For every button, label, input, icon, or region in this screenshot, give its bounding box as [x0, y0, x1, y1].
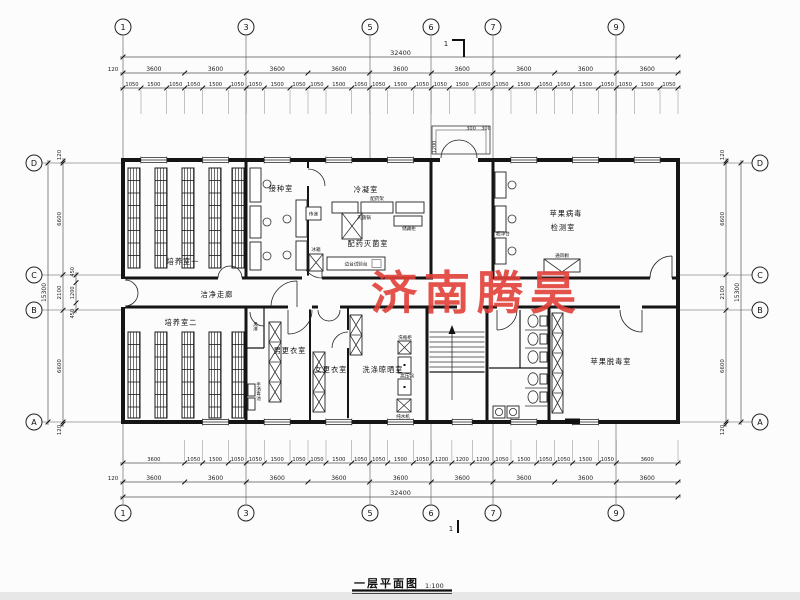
dim-label: 1500 — [394, 82, 407, 88]
label-autoclave: 高压锅 — [400, 373, 414, 380]
dim-left-segments: 120660021006600120 — [57, 149, 65, 435]
label-bench-test: 边台试验台 — [345, 261, 368, 268]
dim-label: 1050 — [539, 82, 552, 88]
dim-label: 3600 — [578, 66, 593, 73]
dim-label: 1050 — [231, 82, 244, 88]
dim-label: 3600 — [331, 475, 346, 482]
stair-up-arrow — [449, 325, 456, 334]
grid-bubble-label: 7 — [490, 509, 495, 518]
dim-right-total: 15300 — [734, 160, 743, 425]
room-label-condensation: 冷凝室 — [354, 185, 379, 194]
title-block: 一层平面图 1:100 — [352, 577, 452, 594]
label-pure-water: 纯水机 — [396, 413, 410, 420]
grid-bubble-label: D — [757, 159, 763, 168]
dim-label: 3600 — [516, 475, 531, 482]
toilet — [540, 352, 547, 362]
dim-label: 1050 — [495, 82, 508, 88]
dim-label: 120 — [720, 424, 726, 435]
dim-label: 1050 — [601, 82, 614, 88]
dim-label: 32400 — [390, 489, 411, 497]
dim-label: 120 — [720, 149, 726, 160]
dim-top-bays: 360036003600360036003600360036003600 — [120, 66, 681, 75]
dim-label: 1050 — [619, 82, 632, 88]
grid-bubble-label: 3 — [243, 23, 248, 32]
room-label-virus-test: 检测室 — [551, 223, 576, 232]
dim-label: 1500 — [641, 82, 654, 88]
dim-label: 1050 — [477, 82, 490, 88]
dim-label: 1500 — [456, 82, 469, 88]
fridge-box — [309, 254, 323, 271]
dim-left-total: 15300 — [41, 160, 50, 425]
label-clean-bench: 超净台 — [496, 230, 510, 237]
room-label-virus-test: 苹果病毒 — [550, 209, 583, 218]
watermark-text: 济南腾昊 — [371, 266, 583, 320]
dim-label: 1500 — [517, 82, 530, 88]
grid-bubble-label: 5 — [367, 509, 372, 518]
entrance-depth-dim: 1200 — [432, 141, 438, 154]
label-sterilizer: 灭菌锅 — [357, 214, 371, 221]
grid-bubble-label: C — [31, 271, 37, 280]
pure-water-box — [397, 399, 411, 412]
edge-offset-top: 120 — [108, 67, 119, 73]
locker-columns — [269, 313, 563, 413]
grid-bubble-label: A — [757, 418, 763, 427]
toilet — [540, 392, 547, 402]
grid-bubble-label: 9 — [613, 23, 618, 32]
dim-label: 120 — [57, 149, 63, 160]
grid-bubble-label: A — [31, 418, 37, 427]
dim-label: 3600 — [640, 475, 655, 482]
label-bottle-wash: 洗瓶柜 — [398, 334, 412, 341]
dim-bottom-bays: 360036003600360036003600360036003600 — [120, 475, 681, 484]
grid-bubble-label: 6 — [428, 23, 433, 32]
room-label-men-change: 男更衣室 — [274, 346, 307, 355]
drawing-title: 一层平面图 — [354, 577, 419, 590]
dim-label: 1500 — [332, 457, 345, 463]
drawing-scale: 1:100 — [425, 582, 444, 590]
dim-label: 1500 — [579, 82, 592, 88]
dim-bottom-total: 32400 — [120, 489, 681, 499]
dim-label: 3600 — [516, 66, 531, 73]
room-label-wash-dry: 洗涤晾晒室 — [363, 365, 404, 374]
entrance-step-dim: 300 — [481, 126, 491, 132]
staircase — [430, 325, 485, 400]
dim-label: 3600 — [147, 457, 160, 463]
dim-label: 1050 — [310, 457, 323, 463]
grid-bubble-label: 3 — [243, 509, 248, 518]
dim-label: 3600 — [640, 66, 655, 73]
dim-label: 1500 — [147, 82, 160, 88]
floorplan-drawing: 135679 135679 DCBA DCBA 32400 3600360036… — [0, 0, 800, 600]
dim-bottom-windows: 3600105015001050105015001050105015001050… — [120, 440, 681, 465]
dim-label: 1200 — [435, 457, 448, 463]
section-mark-label: 1 — [444, 40, 448, 48]
toilet — [540, 374, 547, 384]
grid-bubble-label: B — [757, 306, 763, 315]
entrance-step-dim: 300 — [466, 126, 476, 132]
dim-label: 1500 — [209, 457, 222, 463]
dim-label: 1050 — [310, 82, 323, 88]
dim-label: 1500 — [517, 457, 530, 463]
dim-label: 1500 — [271, 457, 284, 463]
room-label-corridor: 洁净走廊 — [201, 290, 234, 299]
dim-label: 1050 — [125, 82, 138, 88]
dim-label: 3600 — [208, 66, 223, 73]
dim-label: 3600 — [146, 475, 161, 482]
grid-bubble-label: B — [31, 306, 37, 315]
dim-label: 1500 — [209, 82, 222, 88]
dim-label: 1050 — [495, 457, 508, 463]
bottle-wash-box — [398, 341, 411, 354]
dim-label: 1500 — [579, 457, 592, 463]
toilet — [540, 334, 547, 344]
grid-bottom: 135679 — [115, 424, 624, 521]
dim-label: 1050 — [372, 457, 385, 463]
dim-label: 2100 — [720, 285, 726, 299]
dim-label: 1200 — [476, 457, 489, 463]
dim-label: 1500 — [394, 457, 407, 463]
grid-bubble-label: 1 — [120, 23, 125, 32]
room-label-prep-steril: 配药灭菌室 — [348, 239, 389, 248]
dim-label: 3600 — [270, 66, 285, 73]
dim-label: 3600 — [146, 66, 161, 73]
grid-bubble-label: 9 — [613, 509, 618, 518]
room-label-inoculation: 接种室 — [269, 184, 294, 193]
dim-label: 6600 — [57, 359, 63, 373]
dim-label: 3600 — [455, 66, 470, 73]
dim-top-total: 32400 — [120, 49, 681, 59]
dim-right-segments: 120660021006600120 — [720, 149, 728, 435]
grid-bubble-label: C — [757, 271, 763, 280]
label-pass-box: 传递 — [309, 211, 319, 218]
dim-label: 1050 — [372, 82, 385, 88]
dim-label: 6600 — [57, 211, 63, 225]
dim-label: 1050 — [354, 82, 367, 88]
grid-bubble-label: 7 — [490, 23, 495, 32]
sink — [507, 406, 519, 418]
dim-label: 1050 — [169, 82, 182, 88]
floorplan-page: 135679 135679 DCBA DCBA 32400 3600360036… — [0, 0, 800, 600]
dim-label: 1050 — [187, 82, 200, 88]
room-label-women-change: 女更衣室 — [315, 365, 348, 374]
section-mark-bottom: 1 — [449, 520, 458, 533]
dim-label: 1050 — [249, 82, 262, 88]
dim-label: 1500 — [271, 82, 284, 88]
dim-label: 6600 — [720, 359, 726, 373]
dim-label: 1050 — [416, 457, 429, 463]
dim-label: 1050 — [557, 457, 570, 463]
dim-label: 3600 — [578, 475, 593, 482]
dim-label: 1050 — [601, 457, 614, 463]
room-label-detox: 苹果脱毒室 — [591, 357, 632, 366]
dim-label: 450 — [70, 267, 76, 277]
dim-label: 1050 — [187, 457, 200, 463]
room-label-culture2: 培养室二 — [165, 318, 198, 327]
dim-label: 120 — [57, 424, 63, 435]
dim-label: 3600 — [641, 457, 654, 463]
dim-label: 1200 — [456, 457, 469, 463]
dim-top-windows: 1050150010501050150010501050150010501050… — [120, 82, 681, 114]
edge-offset-bottom: 120 — [108, 476, 119, 482]
dim-label: 3600 — [455, 475, 470, 482]
dim-label: 1050 — [557, 82, 570, 88]
dim-label: 3600 — [208, 475, 223, 482]
dim-label: 1200 — [70, 286, 76, 299]
dim-label: 1050 — [292, 82, 305, 88]
label-air-shower: 风淋 — [253, 322, 258, 333]
grid-bubble-label: 1 — [120, 509, 125, 518]
dim-label: 1050 — [231, 457, 244, 463]
dim-label: 6600 — [720, 211, 726, 225]
grid-bubble-label: 6 — [428, 509, 433, 518]
grid-bubble-label: D — [31, 159, 37, 168]
label-hand-wash: 手消毒池 — [256, 381, 261, 401]
dim-label: 2100 — [57, 285, 63, 299]
label-fume-hood: 通风橱 — [555, 252, 569, 259]
dim-label: 1050 — [662, 82, 675, 88]
dim-label: 1050 — [539, 457, 552, 463]
dim-label: 15300 — [41, 283, 48, 302]
dim-label: 1500 — [332, 82, 345, 88]
label-med-rack: 配药架 — [370, 195, 384, 202]
grid-bubble-label: 5 — [367, 23, 372, 32]
label-fridge: 冰箱 — [311, 246, 321, 253]
sink — [493, 406, 505, 418]
dim-label: 32400 — [390, 49, 411, 57]
section-mark-label: 1 — [449, 525, 453, 533]
dim-label: 3600 — [270, 475, 285, 482]
room-label-culture1: 培养室一 — [167, 257, 200, 266]
dim-label: 3600 — [393, 475, 408, 482]
dim-label: 3600 — [331, 66, 346, 73]
dim-label: 15300 — [734, 283, 741, 302]
dim-label: 1050 — [434, 82, 447, 88]
section-mark-top: 1 — [444, 40, 464, 57]
label-storage-cabinet: 储藏柜 — [402, 225, 416, 232]
dim-label: 1050 — [292, 457, 305, 463]
dim-label: 450 — [70, 309, 76, 319]
dim-label: 1050 — [354, 457, 367, 463]
dim-label: 3600 — [393, 66, 408, 73]
dim-label: 1050 — [416, 82, 429, 88]
dim-label: 1050 — [249, 457, 262, 463]
